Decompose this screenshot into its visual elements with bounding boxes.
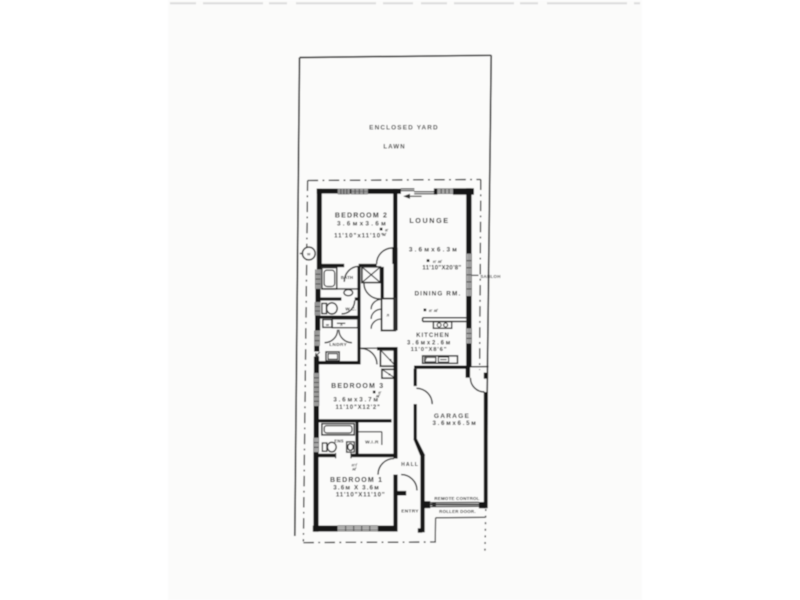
svg-text:BEDROOM 3: BEDROOM 3 bbox=[331, 383, 384, 390]
svg-text:ENS: ENS bbox=[334, 438, 343, 443]
svg-text:3.6мх3.7м: 3.6мх3.7м bbox=[333, 396, 380, 403]
svg-text:п: п bbox=[388, 373, 390, 377]
svg-text:ENTRY: ENTRY bbox=[401, 509, 419, 515]
svg-text:HALL: HALL bbox=[401, 462, 419, 468]
svg-text:ENCLOSED YARD: ENCLOSED YARD bbox=[369, 125, 439, 132]
svg-text:LNDRY: LNDRY bbox=[329, 342, 347, 347]
svg-text:A̸Ґ: A̸Ґ bbox=[352, 466, 357, 471]
svg-text:3.6мх6.3м: 3.6мх6.3м bbox=[409, 246, 459, 253]
svg-text:w: w bbox=[306, 252, 311, 257]
svg-text:ℓГ: ℓГ bbox=[385, 228, 389, 232]
svg-text:3.6мх2.6м: 3.6мх2.6м bbox=[407, 340, 452, 346]
svg-text:SANLOH: SANLOH bbox=[480, 274, 500, 279]
svg-text:DINING RM.: DINING RM. bbox=[414, 290, 461, 297]
svg-text:л: л bbox=[386, 313, 389, 318]
svg-text:GARAGE: GARAGE bbox=[434, 413, 470, 420]
svg-text:LAWN: LAWN bbox=[383, 144, 405, 151]
svg-text:ℓГ A̸Ґ: ℓГ A̸Ґ bbox=[433, 259, 443, 264]
svg-text:ROLLER DOOR.: ROLLER DOOR. bbox=[439, 509, 476, 514]
svg-text:11'10"X11'10": 11'10"X11'10" bbox=[336, 491, 386, 498]
svg-text:11'10"x11'10": 11'10"x11'10" bbox=[334, 232, 385, 239]
svg-text:ℓГ A̸Ґ: ℓГ A̸Ґ bbox=[429, 308, 439, 313]
svg-text:3.6мх6.5м: 3.6мх6.5м bbox=[432, 420, 477, 427]
svg-text:W.I.R: W.I.R bbox=[365, 440, 379, 446]
svg-text:REMOTE CONTROL: REMOTE CONTROL bbox=[434, 496, 479, 501]
svg-text:LOUNGE: LOUNGE bbox=[409, 216, 449, 225]
svg-text:BEDROOM 2: BEDROOM 2 bbox=[335, 213, 388, 220]
svg-text:KITCHEN: KITCHEN bbox=[416, 333, 450, 339]
svg-text:3.6мх3.6м: 3.6мх3.6м bbox=[337, 221, 388, 228]
svg-text:11'0"X8'6": 11'0"X8'6" bbox=[411, 347, 448, 353]
svg-text:11'10"X20'8": 11'10"X20'8" bbox=[422, 265, 461, 271]
svg-text:BATH: BATH bbox=[341, 275, 353, 280]
svg-text:11'10"X12'2": 11'10"X12'2" bbox=[336, 405, 381, 411]
svg-text:BEDROOM 1: BEDROOM 1 bbox=[330, 477, 383, 484]
